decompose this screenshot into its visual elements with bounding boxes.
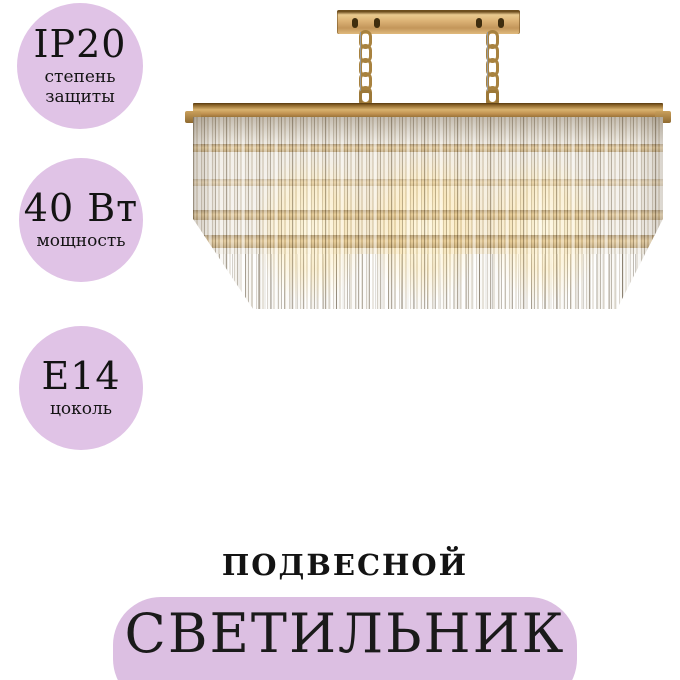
chandelier-photo <box>0 0 680 330</box>
socket-caption: цоколь <box>50 399 112 419</box>
screw-hole <box>498 18 504 28</box>
product-type-label: ПОДВЕСНОЙ <box>10 548 680 582</box>
screw-hole <box>374 18 380 28</box>
screw-hole <box>352 18 358 28</box>
product-name-box: СВЕТИЛЬНИК <box>113 597 577 680</box>
badge-socket: E14 цоколь <box>19 326 143 450</box>
screw-hole <box>476 18 482 28</box>
chandelier-frame <box>193 103 663 118</box>
product-card: IP20 степень защиты 40 Вт мощность E14 ц… <box>0 0 680 680</box>
shading-overlay <box>193 117 663 309</box>
product-name-label: СВЕТИЛЬНИК <box>125 603 566 680</box>
socket-value: E14 <box>41 357 120 396</box>
crystal-body <box>193 117 663 309</box>
